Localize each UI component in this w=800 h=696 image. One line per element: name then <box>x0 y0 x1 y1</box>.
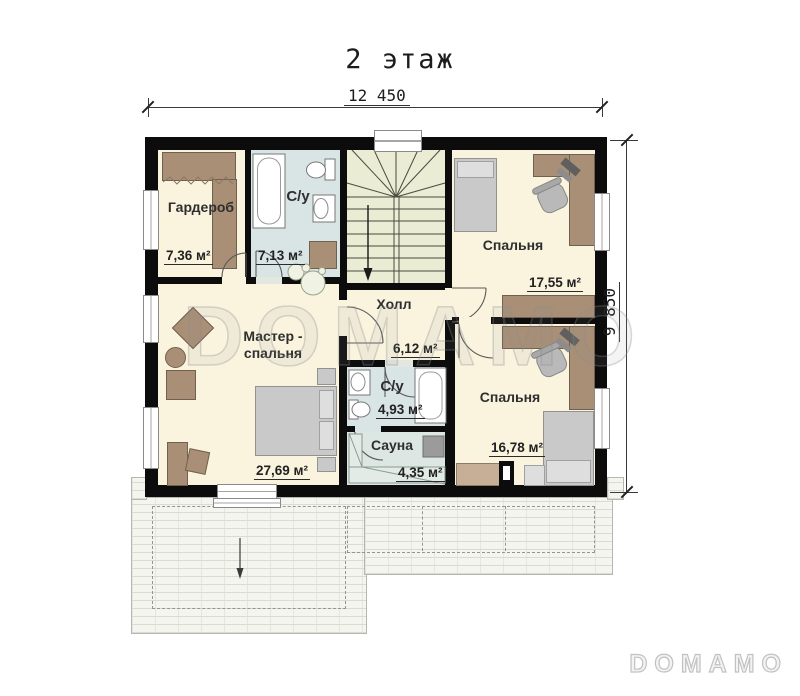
brand-logo: DOMAMO <box>588 650 788 679</box>
staircase <box>347 150 445 283</box>
area-label-bathroom-1: 7,13 м² <box>256 248 305 265</box>
room-label-garderob: Гардероб <box>154 199 248 216</box>
window <box>594 388 610 449</box>
door-opening <box>339 300 347 336</box>
sauna-heater <box>423 436 444 457</box>
door-arc <box>459 324 493 358</box>
door-opening <box>445 288 452 320</box>
room-label-bedroom-bottom: Спальня <box>468 389 552 406</box>
dimension-line-top <box>148 107 602 108</box>
office-chair <box>532 177 572 216</box>
toilet <box>307 159 336 180</box>
room-label-sauna: Сауна <box>360 437 424 454</box>
window <box>374 130 422 152</box>
door-opening <box>355 426 381 432</box>
dimension-height-label: 9 850 <box>600 282 620 342</box>
area-label-bathroom-2: 4,93 м² <box>376 402 425 419</box>
window-sill <box>213 498 281 508</box>
dimension-line-right <box>626 140 627 492</box>
room-label-hall: Холл <box>357 296 431 313</box>
area-label-garderob: 7,36 м² <box>164 248 213 265</box>
area-label-sauna: 4,35 м² <box>396 465 445 482</box>
window <box>143 295 159 343</box>
closet-hangers <box>163 177 233 184</box>
area-label-hall: 6,12 м² <box>391 341 440 358</box>
plant <box>288 264 326 295</box>
area-label-bedroom-bottom: 16,78 м² <box>489 440 545 457</box>
dimension-width-label: 12 450 <box>344 86 410 106</box>
page-title: 2 этаж <box>290 44 510 75</box>
room-label-bedroom-top: Спальня <box>463 237 563 254</box>
roof-slope-arrow <box>237 538 244 579</box>
toilet <box>349 400 370 419</box>
door-opening <box>459 317 491 324</box>
door-opening <box>256 277 282 284</box>
area-label-bedroom-top: 17,55 м² <box>527 275 583 292</box>
room-label-bathroom-1: С/у <box>268 188 328 205</box>
area-label-master: 27,69 м² <box>254 463 310 480</box>
door-opening <box>385 360 413 367</box>
room-label-bathroom-2: С/у <box>366 378 418 395</box>
room-label-master: Мастер - спальня <box>225 328 321 362</box>
door-opening <box>222 277 246 284</box>
floor-plan-page: 2 этаж 12 450 9 850 <box>0 0 800 696</box>
door-arc <box>222 253 246 277</box>
stair-direction-arrow <box>364 205 373 281</box>
window <box>217 484 277 499</box>
window <box>143 407 159 469</box>
window <box>594 193 610 251</box>
